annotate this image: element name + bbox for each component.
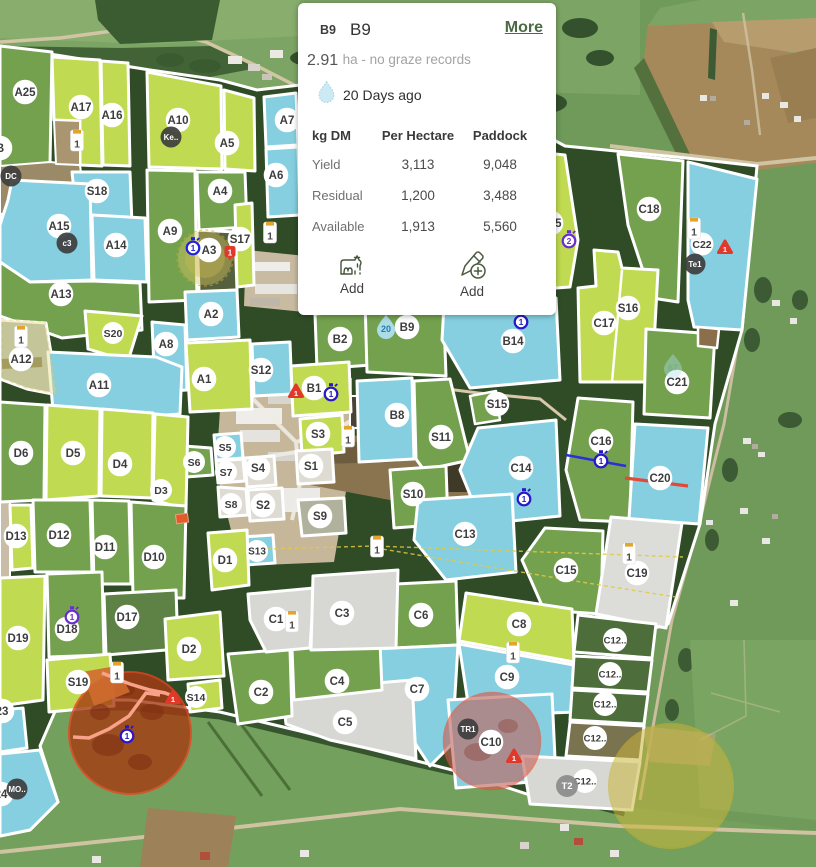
svg-text:D4: D4 bbox=[113, 459, 128, 471]
svg-text:1: 1 bbox=[599, 456, 604, 466]
svg-text:1: 1 bbox=[171, 695, 175, 704]
svg-text:S6: S6 bbox=[188, 457, 201, 469]
svg-text:D2: D2 bbox=[182, 644, 197, 656]
svg-text:B14: B14 bbox=[502, 336, 524, 348]
svg-text:S7: S7 bbox=[220, 467, 233, 479]
svg-text:TR1: TR1 bbox=[460, 725, 476, 734]
svg-text:S5: S5 bbox=[219, 442, 232, 454]
svg-text:C1: C1 bbox=[269, 614, 284, 626]
svg-text:D18: D18 bbox=[56, 624, 78, 636]
svg-text:S10: S10 bbox=[403, 489, 423, 501]
svg-text:C13: C13 bbox=[454, 529, 475, 541]
svg-text:A1: A1 bbox=[197, 374, 212, 386]
svg-text:D13: D13 bbox=[5, 531, 26, 543]
svg-text:A12: A12 bbox=[10, 354, 31, 366]
svg-text:A16: A16 bbox=[101, 110, 122, 122]
svg-text:D19: D19 bbox=[7, 633, 28, 645]
svg-text:A13: A13 bbox=[50, 289, 71, 301]
svg-text:C12..: C12.. bbox=[584, 733, 607, 744]
svg-text:C7: C7 bbox=[410, 684, 425, 696]
svg-text:C15: C15 bbox=[555, 565, 577, 577]
svg-text:D6: D6 bbox=[14, 448, 29, 460]
svg-text:C6: C6 bbox=[414, 610, 429, 622]
svg-text:S4: S4 bbox=[251, 463, 266, 475]
svg-text:A6: A6 bbox=[269, 170, 284, 182]
svg-text:1: 1 bbox=[114, 671, 120, 683]
svg-text:S9: S9 bbox=[313, 511, 327, 523]
svg-text:1: 1 bbox=[191, 243, 196, 253]
svg-text:S15: S15 bbox=[487, 399, 508, 411]
svg-text:A17: A17 bbox=[70, 102, 91, 114]
svg-text:C3: C3 bbox=[335, 608, 350, 620]
svg-text:2: 2 bbox=[567, 236, 572, 246]
svg-text:C8: C8 bbox=[512, 619, 527, 631]
svg-text:B8: B8 bbox=[390, 410, 405, 422]
svg-text:A14: A14 bbox=[105, 240, 127, 252]
svg-text:1: 1 bbox=[18, 335, 24, 347]
svg-text:C12..: C12.. bbox=[599, 669, 622, 680]
svg-text:T2: T2 bbox=[561, 781, 572, 792]
svg-text:Te1: Te1 bbox=[688, 260, 702, 269]
svg-text:C19: C19 bbox=[626, 568, 647, 580]
svg-text:D11: D11 bbox=[95, 542, 116, 554]
svg-text:1: 1 bbox=[522, 494, 527, 504]
svg-text:C9: C9 bbox=[500, 672, 515, 684]
svg-text:c3: c3 bbox=[63, 239, 72, 248]
svg-text:C18: C18 bbox=[638, 204, 660, 216]
svg-text:C5: C5 bbox=[338, 717, 353, 729]
svg-text:A5: A5 bbox=[220, 138, 235, 150]
svg-text:C17: C17 bbox=[593, 318, 614, 330]
svg-text:S2: S2 bbox=[256, 500, 270, 512]
svg-text:D17: D17 bbox=[116, 612, 137, 624]
svg-text:S3: S3 bbox=[311, 429, 325, 441]
svg-text:1: 1 bbox=[267, 231, 273, 243]
svg-text:Ke..: Ke.. bbox=[164, 133, 179, 142]
svg-text:C2: C2 bbox=[254, 687, 269, 699]
svg-text:1: 1 bbox=[228, 249, 233, 258]
svg-text:MO..: MO.. bbox=[8, 785, 25, 794]
svg-text:1: 1 bbox=[691, 227, 697, 239]
svg-text:C12..: C12.. bbox=[604, 635, 627, 646]
svg-text:1: 1 bbox=[125, 731, 130, 741]
svg-text:C21: C21 bbox=[666, 377, 688, 389]
svg-text:A11: A11 bbox=[89, 380, 110, 392]
svg-text:D1: D1 bbox=[218, 555, 233, 567]
svg-text:C4: C4 bbox=[330, 676, 345, 688]
svg-text:C20: C20 bbox=[649, 473, 670, 485]
svg-text:1: 1 bbox=[374, 545, 380, 557]
svg-text:D10: D10 bbox=[143, 552, 164, 564]
svg-text:S1: S1 bbox=[304, 461, 319, 473]
svg-text:D12: D12 bbox=[48, 530, 69, 542]
svg-text:1: 1 bbox=[294, 389, 298, 398]
svg-text:S18: S18 bbox=[87, 186, 108, 198]
svg-text:1: 1 bbox=[345, 435, 351, 447]
svg-text:S12: S12 bbox=[251, 365, 271, 377]
svg-text:B2: B2 bbox=[333, 334, 348, 346]
svg-text:S8: S8 bbox=[225, 499, 238, 511]
svg-text:A7: A7 bbox=[280, 115, 295, 127]
svg-text:1: 1 bbox=[329, 389, 334, 399]
svg-text:A9: A9 bbox=[163, 226, 178, 238]
svg-text:S17: S17 bbox=[230, 234, 250, 246]
svg-text:D3: D3 bbox=[154, 485, 168, 497]
svg-text:1: 1 bbox=[289, 620, 295, 632]
svg-text:C10: C10 bbox=[480, 737, 501, 749]
svg-text:C22: C22 bbox=[692, 239, 711, 251]
svg-text:S14: S14 bbox=[187, 692, 206, 704]
svg-text:B9: B9 bbox=[400, 322, 415, 334]
svg-text:1: 1 bbox=[512, 754, 516, 763]
svg-text:1: 1 bbox=[70, 612, 75, 622]
svg-text:A10: A10 bbox=[167, 115, 188, 127]
svg-text:A8: A8 bbox=[159, 339, 174, 351]
svg-text:C12..: C12.. bbox=[594, 699, 617, 710]
svg-text:B1: B1 bbox=[307, 383, 322, 395]
svg-text:1: 1 bbox=[519, 317, 524, 327]
svg-text:20: 20 bbox=[381, 324, 391, 334]
svg-text:S11: S11 bbox=[431, 432, 451, 444]
svg-text:C16: C16 bbox=[590, 436, 611, 448]
svg-text:DC: DC bbox=[5, 172, 17, 181]
svg-text:A25: A25 bbox=[14, 87, 36, 99]
svg-text:A15: A15 bbox=[48, 221, 70, 233]
svg-text:A2: A2 bbox=[204, 309, 219, 321]
svg-text:C14: C14 bbox=[510, 463, 532, 475]
svg-text:S20: S20 bbox=[104, 328, 123, 340]
svg-text:S13: S13 bbox=[248, 547, 266, 558]
svg-text:D5: D5 bbox=[66, 448, 81, 460]
svg-text:B: B bbox=[0, 143, 4, 155]
svg-text:S16: S16 bbox=[618, 303, 638, 315]
svg-text:67: 67 bbox=[668, 363, 678, 373]
svg-text:1: 1 bbox=[723, 245, 727, 254]
svg-text:S19: S19 bbox=[68, 677, 88, 689]
svg-text:1: 1 bbox=[626, 552, 632, 564]
svg-text:A4: A4 bbox=[213, 186, 228, 198]
svg-text:A3: A3 bbox=[202, 245, 217, 257]
svg-text:1: 1 bbox=[74, 139, 80, 151]
svg-text:1: 1 bbox=[510, 651, 516, 663]
svg-text:23: 23 bbox=[0, 706, 8, 718]
